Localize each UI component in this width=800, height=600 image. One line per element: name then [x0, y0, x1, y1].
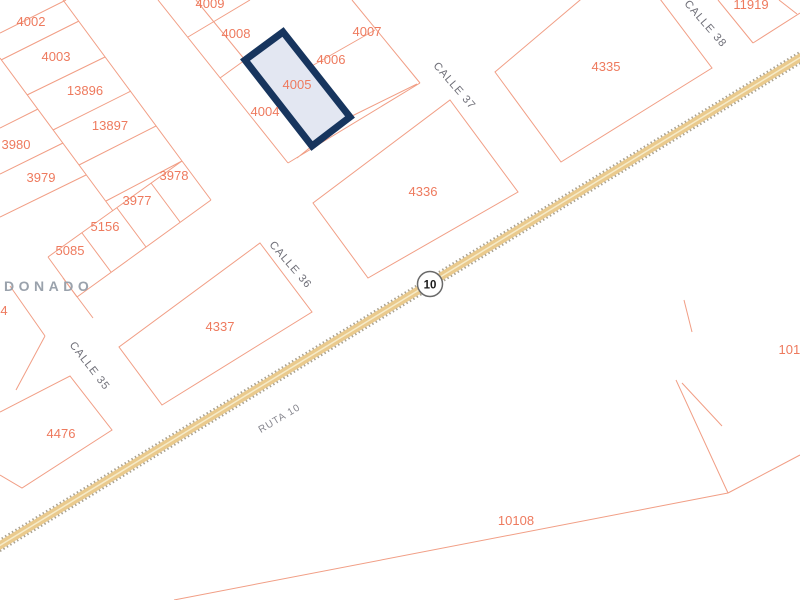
parcel-label-3980: 3980	[2, 137, 31, 152]
street-label-calle-38: CALLE 38	[682, 0, 729, 50]
parcel-label-13897: 13897	[92, 118, 128, 133]
parcel-label-10108: 10108	[498, 513, 534, 528]
parcel-label-3978: 3978	[160, 168, 189, 183]
parcel-boundary-south	[174, 300, 800, 600]
parcel-label-5156: 5156	[91, 219, 120, 234]
parcel-label-4008: 4008	[222, 26, 251, 41]
parcel-label-4007: 4007	[353, 24, 382, 39]
cadastral-map-canvas[interactable]: 10 LDONADO 40024003138961389739803979397…	[0, 0, 800, 600]
parcel-label-4002: 4002	[17, 14, 46, 29]
route-shield-number: 10	[424, 280, 437, 292]
parcel-label-4: 4	[0, 303, 7, 318]
parcel-label-11919: 11919	[733, 0, 768, 12]
parcel-boundary-4335	[495, 0, 712, 162]
city-label-maldonado: LDONADO	[0, 278, 93, 294]
route-name-label: RUTA 10	[257, 402, 303, 436]
parcel-labels: 4002400313896138973980397939783977515650…	[0, 0, 800, 528]
parcel-label-4337: 4337	[206, 319, 235, 334]
parcel-label-4004: 4004	[251, 104, 280, 119]
parcel-label-5085: 5085	[56, 243, 85, 258]
parcel-label-4336: 4336	[409, 184, 438, 199]
parcel-label-13896: 13896	[67, 83, 103, 98]
route-shield: 10	[418, 272, 443, 297]
street-labels: CALLE 38CALLE 37CALLE 36CALLE 35	[67, 0, 729, 393]
parcel-label-4335: 4335	[592, 59, 621, 74]
parcel-label-4009: 4009	[196, 0, 225, 11]
parcel-label-4476: 4476	[47, 426, 76, 441]
map-viewport[interactable]: 10 LDONADO 40024003138961389739803979397…	[0, 0, 800, 600]
parcel-label-4005: 4005	[283, 77, 312, 92]
parcel-label-4006: 4006	[317, 52, 346, 67]
parcel-label-1010: 1010	[779, 342, 800, 357]
street-label-calle-37: CALLE 37	[431, 60, 478, 112]
street-label-calle-35: CALLE 35	[67, 340, 112, 393]
parcel-label-3977: 3977	[123, 193, 152, 208]
parcel-label-4003: 4003	[42, 49, 71, 64]
parcel-label-3979: 3979	[27, 170, 56, 185]
